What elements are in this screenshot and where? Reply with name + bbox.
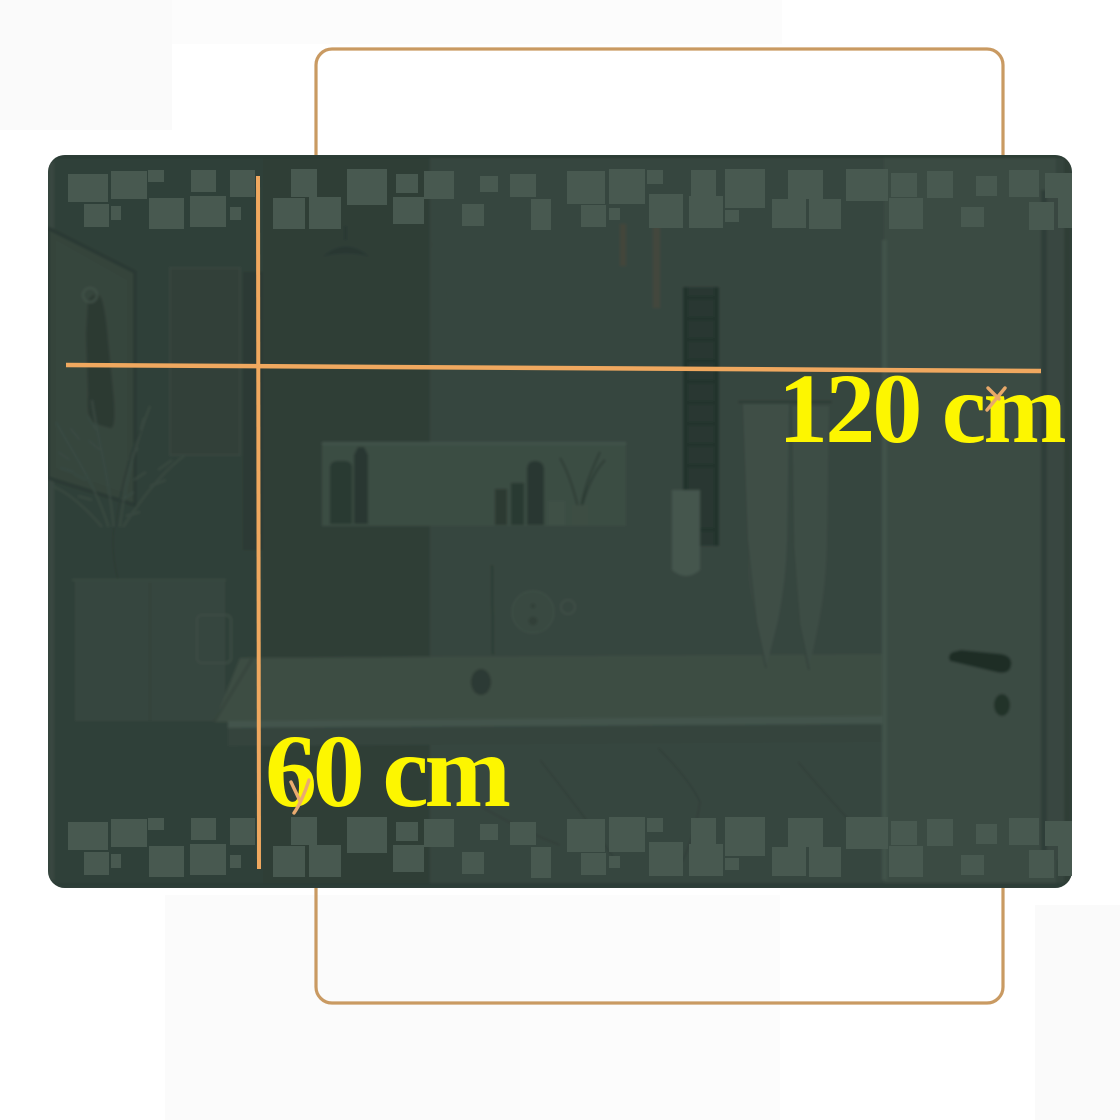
svg-text:120 cm: 120 cm (778, 353, 1065, 464)
svg-text:60 cm: 60 cm (265, 714, 509, 829)
